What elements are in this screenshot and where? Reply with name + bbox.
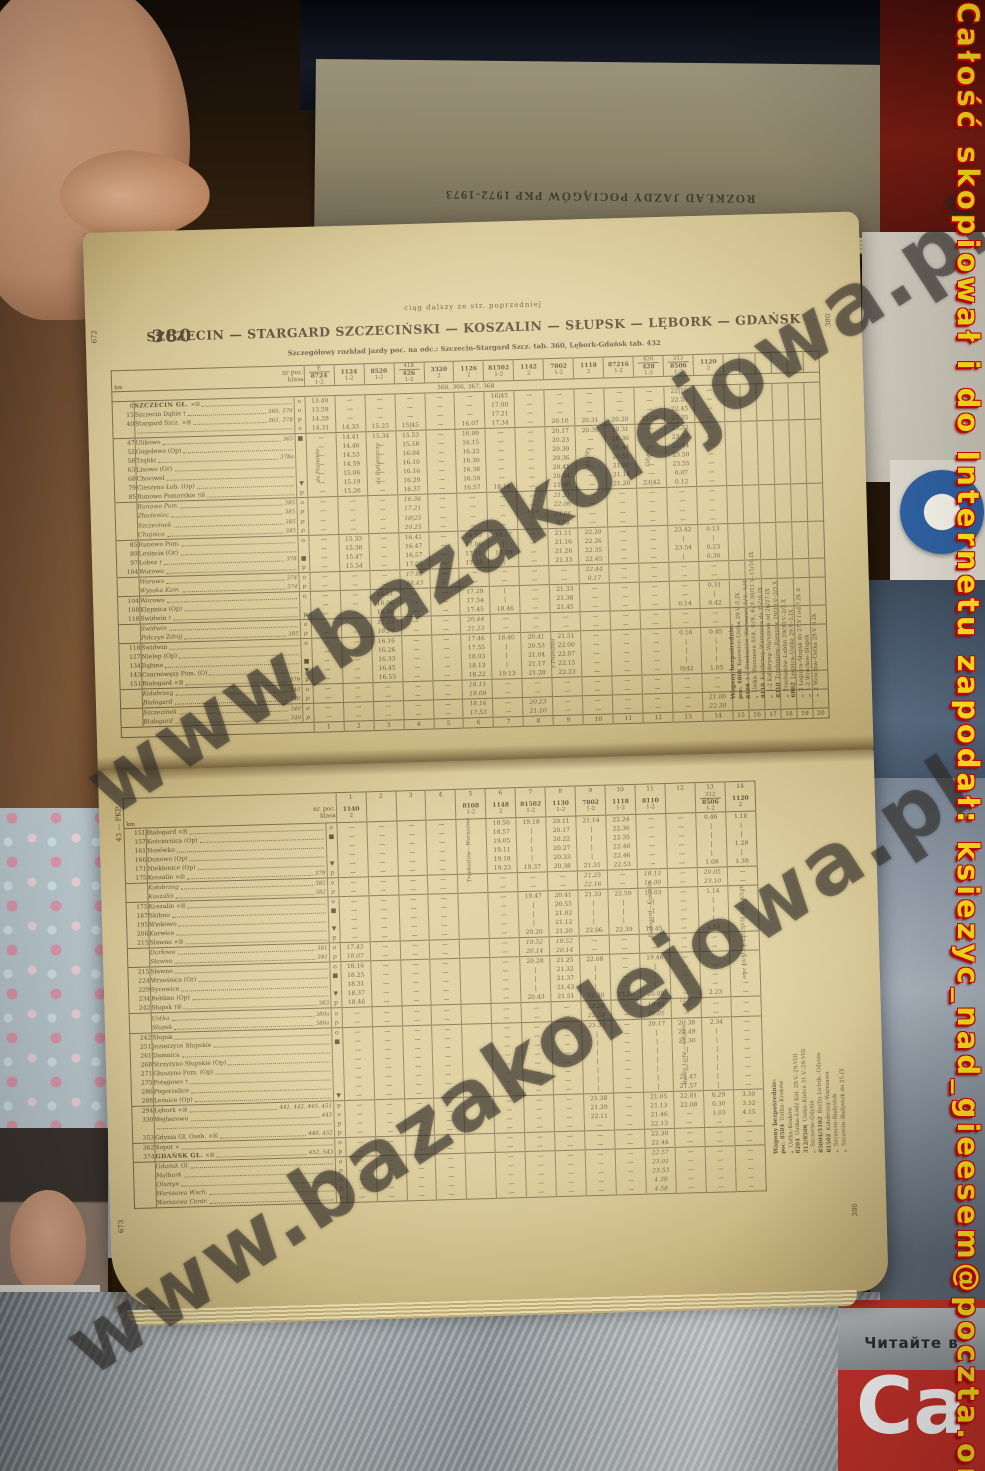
station-name: Połczyn Zdrój (141, 633, 183, 641)
arrival-departure-mark: p (329, 933, 340, 943)
notes-route: Szczecin–Białystok do 25.IX (839, 1068, 847, 1146)
col-number: 18 (781, 709, 797, 719)
col-number: 2 (344, 721, 374, 732)
arrival-departure-mark (296, 470, 307, 479)
notes-route: 2 Wrocław–Ustka 29.V–5.IX (812, 613, 820, 690)
notes-route: Szczecin–Gdynia (810, 1100, 817, 1147)
arrival-departure-mark: p (333, 1101, 344, 1111)
km-cell: 104 (117, 596, 139, 606)
station-name: Koszalin (148, 874, 174, 882)
arrival-departure-mark: o (329, 943, 340, 953)
km-label: km (114, 385, 123, 391)
train-class: 1-2 (516, 807, 545, 814)
arrival-departure-mark: ■ (295, 433, 306, 443)
notes-route: Legnica–Ustka 29.V–5.IX (789, 609, 797, 679)
direct-cars-notes: Wagony bezpośrednie:poc. 4806Katowice–Us… (722, 397, 822, 699)
train-number-cell: 11241-2 (334, 364, 365, 386)
train-number-cell: 33202 (424, 361, 455, 383)
time-cell: — (556, 1186, 586, 1196)
arrival-departure-mark: o (298, 535, 309, 545)
dotted-leader (137, 428, 292, 433)
arrival-departure-mark: ▼ (328, 924, 339, 933)
train-class: 1-2 (544, 369, 573, 376)
train-class (367, 811, 396, 812)
station-name: Nielep (Op) (142, 653, 178, 661)
station-name: Szczecinek (138, 521, 172, 529)
arrival-departure-mark: o (294, 396, 305, 406)
train-number-cell: 11182 (573, 357, 604, 379)
train-number-cell: 815021-2 (483, 360, 514, 382)
arrival-departure-mark: p (327, 868, 338, 878)
km-cell (134, 1198, 156, 1208)
empty-cell (797, 699, 813, 709)
notes-route: Ustka–Kraków (787, 1107, 794, 1148)
station-name: Skibno (149, 912, 170, 920)
station-name: Wejherowo (154, 1115, 188, 1123)
train-number (666, 802, 695, 803)
station-name: Niekłonice (Op) (147, 864, 195, 872)
col-number: 13 (673, 711, 703, 722)
time-cell: — (496, 1188, 526, 1198)
notes-train-number: „ (799, 694, 805, 697)
rotated-column-label: do Poznania (315, 434, 329, 496)
station-refs: 385 (285, 509, 297, 515)
station-name: Warszawa Centr. (157, 1198, 208, 1206)
train-class: 1-2 (364, 374, 393, 381)
notes-train-number: „ (784, 694, 790, 697)
station-name: Słupsk (151, 1004, 172, 1012)
station-name: Worowo (139, 568, 164, 576)
station-name: Rąbino (142, 662, 164, 670)
arrival-departure-mark: p (331, 1018, 342, 1028)
station-name: Leśnice (Op) (154, 1096, 193, 1104)
photo-of-timetable-book: ROZKŁAD JAZDY POCIĄGÓW PKP 1972-1973 Чит… (0, 0, 985, 1471)
train-number-cell: 11262 (453, 360, 484, 382)
arrival-departure-mark: ■ (328, 906, 339, 915)
train-class: 1-2 (546, 806, 575, 813)
station-name: Sopot (155, 1144, 173, 1151)
empty-cell (765, 700, 781, 710)
col-number: 7 (493, 716, 523, 727)
notes-route: 1-2 Wrocław–Słupsk (805, 634, 813, 690)
train-class: 2 (726, 801, 755, 808)
station-name: Gogolewo (Op) (136, 447, 182, 455)
station-symbols: † (185, 1079, 188, 1085)
station-name: Worowo (140, 597, 165, 605)
station-refs: 382 (315, 889, 327, 895)
rotated-column-label: z Poznania (550, 626, 564, 681)
train-number: 81502 (516, 800, 545, 808)
km-cell: 47 (113, 438, 135, 448)
km-cell: 175 (126, 902, 148, 912)
station-name: Damnica (153, 1052, 180, 1060)
train-class: 2 (574, 368, 603, 375)
notes-route: Katowice–Ustka 29.V–5.IX (735, 592, 743, 665)
station-name: Lesięcin (Or) (139, 550, 179, 558)
arrival-departure-mark (333, 1082, 344, 1091)
empty-cell (733, 701, 749, 711)
station-name: Gdynia Gł. Osob. (155, 1133, 206, 1141)
station-name: Nosówko (147, 847, 175, 855)
time-cell: — (437, 1190, 467, 1200)
arrival-departure-mark: o (331, 1008, 342, 1019)
train-class: 1-2 (484, 371, 513, 378)
arrival-departure-mark: p (327, 887, 338, 897)
station-name: Pogorzelice (154, 1087, 189, 1095)
arrival-departure-mark (332, 1064, 343, 1073)
station-name: Łobez (139, 559, 157, 567)
arrival-departure-mark (295, 443, 306, 452)
train-class (397, 810, 426, 811)
station-name: Stargard Szcz. (135, 419, 180, 427)
arrival-departure-mark: o (296, 497, 307, 507)
notes-train-number: „ (814, 693, 820, 696)
station-refs: 381 (317, 945, 329, 951)
station-symbols: † (168, 616, 171, 622)
notes-rotated-block: Wagony bezpośrednie:poc. 4806Katowice–Us… (722, 397, 822, 699)
station-name: Reblino (Op) (151, 994, 190, 1002)
col-number: 19 (797, 708, 813, 718)
train-number-cell (426, 799, 456, 820)
time-cell: — (706, 1182, 736, 1192)
arrival-departure-mark: p (296, 488, 307, 498)
col-number: 9 (553, 715, 583, 726)
station-refs: 381 (317, 954, 329, 960)
km-cell: 85 (116, 540, 138, 550)
arrival-departure-mark: p (297, 507, 308, 516)
station-name: Wiekowo (149, 921, 177, 929)
notes-route: Ustka–Kraków (779, 1080, 786, 1121)
station-name: Wysoka Kam. (140, 586, 181, 594)
train-class: 1-2 (636, 804, 665, 811)
station-name: Malbork (156, 1172, 182, 1180)
col-number: 4 (404, 719, 434, 730)
magazine-title: Ca (856, 1362, 966, 1452)
station-refs: 385 (285, 500, 297, 506)
station-refs: 360, 370 (268, 408, 294, 415)
station-name: Runowo Pom. (138, 540, 180, 548)
notes-train-number: „ (806, 694, 812, 697)
notes-train-number: „ (788, 1150, 794, 1153)
col-number: 12 (643, 712, 673, 723)
arrival-departure-mark: p (329, 952, 340, 962)
empty-cell (749, 700, 765, 710)
station-refs: 378a (280, 454, 295, 460)
notes-train-number: 312/8506 (803, 1124, 810, 1153)
station-name: Runowo Pomorskie (137, 492, 195, 501)
station-name: Złocieniec (138, 512, 169, 520)
station-name: Kołobrzeg (148, 884, 179, 892)
col-number: 14 (703, 711, 733, 722)
woman-face (10, 1190, 86, 1295)
arrival-departure-mark: o (331, 1028, 342, 1038)
km-cell (115, 521, 137, 532)
arrival-departure-mark: ▼ (296, 479, 307, 488)
arrival-departure-mark: p (330, 998, 341, 1008)
notes-train-number: poc. 4806 (737, 669, 744, 699)
train-number-cell: 81101-2 (635, 793, 666, 814)
train-number-cell: 11482 (486, 797, 517, 818)
station-refs: 361, 378 (268, 417, 294, 424)
notes-route: Ustka–Kielce 31.V–29.VIII (801, 1049, 809, 1122)
page-number-left: 672 (90, 330, 98, 344)
station-symbols: ×☒ (182, 420, 192, 426)
station-line (135, 428, 294, 434)
train-number (367, 811, 396, 812)
train-class: 1-2 (335, 375, 364, 382)
notes-train-number: 6802 (791, 682, 797, 697)
station-name: Ustka (152, 1014, 170, 1021)
arrival-departure-mark: p (297, 516, 308, 526)
arrival-departure-mark (298, 545, 309, 554)
time-cell: — (526, 1187, 556, 1197)
arrival-departure-mark (333, 1073, 344, 1082)
arrival-departure-mark: ■ (332, 1037, 343, 1046)
train-class: 2 (454, 371, 483, 378)
arrival-departure-mark: ■ (326, 832, 337, 841)
station-name: Kościernica (Op) (147, 837, 198, 845)
station-name: Słupsk (152, 1024, 173, 1032)
time-cell: 4.58 (646, 1184, 676, 1194)
km-cell: 0 (112, 401, 134, 411)
col-number: 11 (613, 713, 643, 724)
station-refs: 378 (286, 556, 298, 562)
station-name: Ulikowo (136, 439, 161, 447)
train-number-cell: E87241-2 (304, 365, 335, 387)
station-name: GDAŃSK GŁ. (156, 1152, 204, 1160)
train-class: 2 (337, 812, 366, 819)
km-cell (129, 1013, 151, 1024)
rotated-column-label: do Bydgoszczy (375, 433, 389, 495)
notes-train-number: „ (811, 1150, 817, 1153)
station-symbols: † (159, 560, 162, 566)
train-class: 1-2 (606, 804, 635, 811)
arrival-departure-mark: o (299, 572, 310, 582)
km-cell: 118 (119, 643, 141, 653)
train-number-cell: 11181-2 (605, 794, 636, 815)
time-cell: — (616, 1185, 646, 1195)
station-name: Olsztyn (156, 1181, 179, 1189)
station-refs: 383 (319, 1000, 331, 1006)
station-name: Warszawa Wsch. (157, 1189, 208, 1197)
station-symbols: ×☒ (190, 402, 200, 408)
station-symbols: ×☒ (175, 874, 185, 880)
station-refs: 380a (316, 1011, 331, 1017)
station-name: Świdwin (141, 644, 167, 652)
arrival-departure-mark (295, 461, 306, 470)
station-symbols: ×☒ (178, 829, 188, 835)
station-name: Białogard (142, 680, 172, 688)
time-cell: — (676, 1183, 706, 1193)
arrival-departure-mark: o (294, 406, 305, 415)
arrival-departure-mark: o (329, 962, 340, 972)
station-refs: 380a (316, 1020, 331, 1026)
station-name: Sławno (150, 958, 172, 966)
train-number-cell: 4184261-2 (394, 362, 425, 384)
arrival-departure-mark: o (328, 897, 339, 907)
time-cell: — (736, 1181, 766, 1191)
notes-train-number: 8110 (760, 683, 766, 698)
page-number-right: 380 (851, 1203, 859, 1217)
station-refs: 379 (315, 870, 327, 876)
station-refs: 374 (287, 575, 299, 581)
train-number-cell (396, 800, 426, 821)
notes-train-number: „ (841, 1149, 847, 1152)
station-name: Potęgowo (153, 1079, 183, 1087)
arrival-departure-mark: ▼ (330, 989, 341, 998)
station-name: Białogard (146, 829, 176, 837)
station-name: Sławno (150, 968, 172, 976)
notes-train-number: 85004/5102 (818, 1116, 825, 1153)
km-cell: 242 (130, 1033, 152, 1043)
station-name: Chojnice (138, 531, 165, 539)
arrival-departure-mark: p (297, 526, 308, 536)
arrival-departure-mark (326, 841, 337, 850)
col-number: 16 (749, 710, 765, 720)
train-class (666, 802, 695, 803)
station-name: Runowo Pom. (137, 502, 179, 510)
arrival-departure-mark: p (294, 415, 305, 424)
col-number: 8 (523, 716, 553, 727)
train-number-cell: 11301-2 (545, 796, 576, 817)
notes-train-number: poc. 8504 (780, 1124, 787, 1154)
arrival-departure-mark (332, 1055, 343, 1064)
arrival-departure-mark: p (299, 582, 310, 592)
train-number-cell: 31285061-2 (695, 791, 726, 812)
empty-cell (813, 698, 829, 708)
col-number: 6 (463, 717, 493, 728)
col-number: 3 (374, 720, 404, 731)
train-number (426, 809, 455, 810)
train-class: 2 (424, 372, 453, 379)
train-number-cell: 78021-2 (575, 795, 606, 816)
train-class: 1-2 (604, 367, 633, 374)
page-number-left: 673 (117, 1220, 125, 1234)
notes-train-number: „ (753, 695, 759, 698)
train-number: 81502 (484, 364, 513, 372)
station-refs: 382 (315, 880, 327, 886)
arrival-departure-mark (330, 980, 341, 989)
train-number (397, 810, 426, 811)
station-symbols: ×☒ (174, 940, 184, 946)
station-name: Lisowo (Or) (136, 466, 172, 474)
station-refs: 385 (285, 528, 297, 534)
station-name: Koszalin (149, 903, 175, 911)
col-number: 10 (583, 714, 613, 725)
train-number-cell: 78021-2 (543, 358, 574, 380)
station-symbols: †☒ (174, 1005, 182, 1011)
station-symbols: † (183, 411, 186, 417)
train-number-cell (665, 792, 696, 813)
station-name: Karwice (149, 930, 174, 938)
station-symbols: ×☒ (178, 1107, 188, 1113)
km-cell: 215 (128, 967, 150, 977)
col-number: 20 (813, 708, 829, 718)
arrival-departure-mark: ■ (330, 971, 341, 980)
notes-train-number: 81502 (826, 1133, 833, 1152)
station-name: Darłowo (150, 949, 176, 957)
col-number: 15 (733, 710, 749, 720)
col-number: 17 (765, 709, 781, 719)
rotated-column-label: Berlin Licht.—Gdynia (681, 1016, 695, 1092)
station-symbols: ×☒ (205, 1153, 215, 1159)
arrival-departure-mark: o (294, 424, 305, 434)
station-refs: 374 (287, 584, 299, 590)
station-name: Koszalin (148, 893, 174, 901)
train-number-cell: 872161-2 (603, 356, 634, 378)
station-symbols: ×☒ (176, 903, 186, 909)
station-name: Sycewice (151, 986, 180, 994)
train-class (426, 809, 455, 810)
time-cell: — (586, 1186, 616, 1196)
rotated-column-label: Trzebiatów—Warszawa (465, 814, 479, 886)
notes-train-number: „ (768, 695, 774, 698)
station-refs: 445 (322, 1112, 334, 1118)
train-class: 1-2 (576, 805, 605, 812)
station-symbols: †☒ (197, 493, 205, 499)
time-cell (466, 1189, 496, 1199)
credit-overlay-text: Całość skopiował i do Internetu zapodał:… (951, 2, 985, 1471)
arrival-departure-mark (328, 915, 339, 924)
arrival-departure-mark: p (298, 563, 309, 573)
notes-route: Berlin Lichtb.–Gdynia (816, 1053, 824, 1114)
station-name: Lębork (154, 1107, 176, 1115)
empty-cell (781, 699, 797, 709)
station-refs: 385 (285, 519, 297, 525)
arrival-departure-mark: ▼ (327, 859, 338, 868)
station-name: Świdwin (140, 615, 166, 623)
station-name: Klępnica (Op) (140, 605, 182, 613)
station-name: Szczecin Dąbie (135, 410, 181, 418)
col-number: 5 (434, 718, 464, 729)
train-number: 87216 (604, 360, 633, 368)
arrival-departure-mark (332, 1046, 343, 1055)
station-name: Słupsk (152, 1034, 173, 1042)
station-name: Trąbki (136, 457, 156, 465)
train-number-cell: 85201-2 (364, 363, 395, 385)
station-name: Sławno (150, 939, 172, 947)
train-class: 2 (486, 808, 515, 815)
arrival-departure-mark: o (334, 1110, 345, 1119)
dotted-leader (157, 1123, 332, 1129)
station-name: Wrześnica (Or) (151, 976, 197, 984)
station-symbols: × (175, 1145, 180, 1151)
notes-train-number: 8108 (745, 683, 751, 698)
station-symbols: ×☒ (208, 1134, 218, 1140)
arrival-departure-mark: o (327, 878, 338, 888)
notes-train-number: „ (834, 1149, 840, 1152)
train-number-cell (366, 801, 396, 822)
notes-train-number: 8204 (796, 1138, 802, 1153)
station-name: Worowo (139, 578, 164, 586)
arrival-departure-mark (326, 850, 337, 859)
train-class: 2 (514, 370, 543, 377)
station-name: Świdwin (141, 625, 167, 633)
train-number-cell: 815021-2 (515, 796, 546, 817)
station-name: Gdańsk Gł. (156, 1162, 190, 1170)
arrival-departure-mark: o (326, 823, 337, 833)
hand-finger (60, 150, 210, 240)
notes-route: Kołobrzeg–Warszawa (824, 1071, 832, 1130)
arrival-departure-mark: ■ (298, 554, 309, 563)
notes-route: Szczecin–Białystok (832, 1093, 839, 1146)
train-number-cell: 11422 (513, 359, 544, 381)
train-number-cell: 11202 (725, 790, 756, 811)
station-refs: 365 (283, 436, 295, 442)
train-number-cell: 11402 (336, 801, 367, 822)
station-name: Chociwel (137, 475, 165, 483)
arrival-departure-mark: ▼ (333, 1091, 344, 1101)
